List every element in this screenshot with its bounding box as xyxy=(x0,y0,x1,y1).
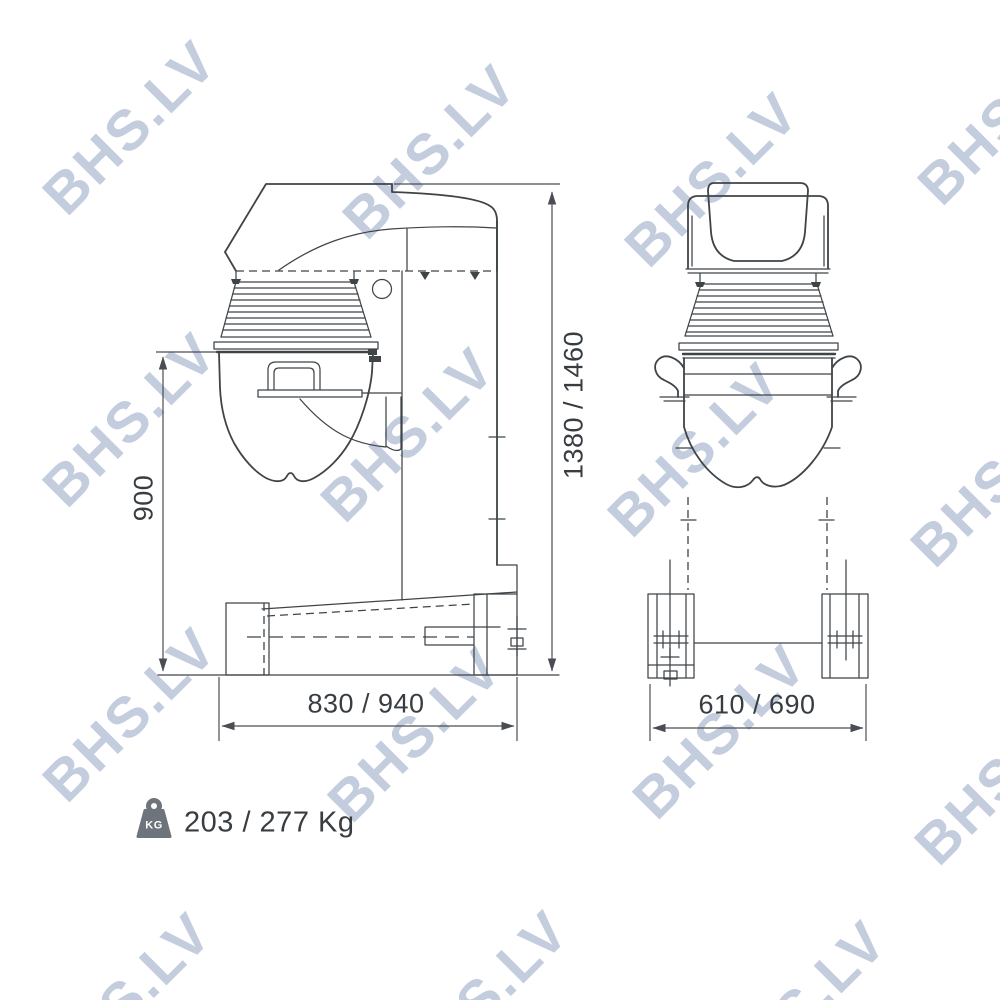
bellows-guard-front xyxy=(679,284,838,358)
mixer-head-front xyxy=(686,183,830,287)
kg-icon-label: KG xyxy=(145,820,163,832)
mixer-head-side xyxy=(225,184,497,299)
kg-weight-icon: KG xyxy=(132,797,176,841)
dimension-lines xyxy=(156,184,866,741)
front-view xyxy=(648,183,868,686)
bowl-height-dimension: 900 xyxy=(129,475,160,522)
base-front xyxy=(648,497,868,686)
side-view xyxy=(158,184,559,675)
diagram-canvas: BHS.LVBHS.LVBHS.LVBHS.LVBHS.LVBHS.LVBHS.… xyxy=(0,0,1000,1000)
bowl-side xyxy=(219,349,401,481)
depth-dimension: 830 / 940 xyxy=(307,689,424,720)
bowl-front xyxy=(655,356,861,487)
width-dimension: 610 / 690 xyxy=(698,690,815,721)
overall-height-dimension: 1380 / 1460 xyxy=(559,331,590,479)
weight-value: 203 / 277 Kg xyxy=(184,807,354,840)
base-side xyxy=(158,565,559,675)
column-side xyxy=(402,221,505,600)
bellows-guard-side xyxy=(214,282,378,352)
